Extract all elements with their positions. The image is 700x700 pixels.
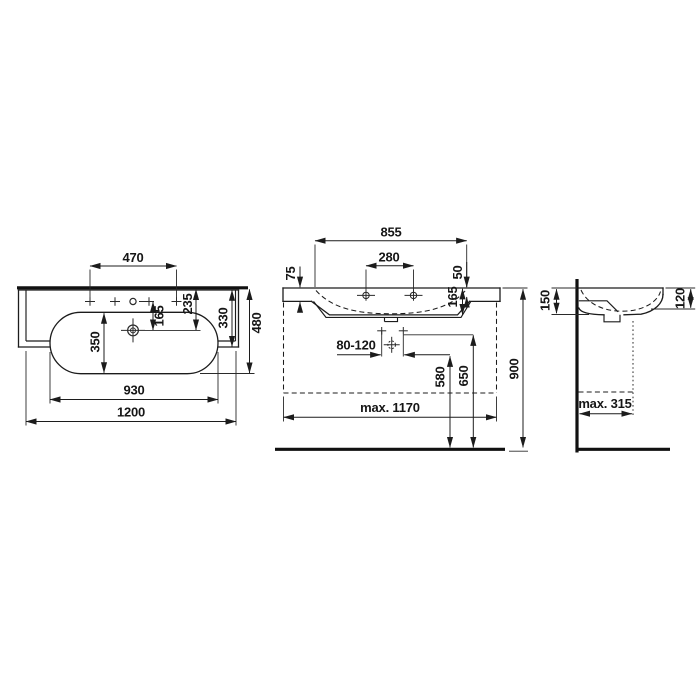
side-dim-wall-height: 150 [537,290,552,311]
plan-dim-back-to-drain: 235 [180,293,195,314]
front-drain-stub [385,317,398,321]
plan-dim-tap-to-drain: 165 [151,305,166,326]
front-bowl-interior-dashed [316,291,466,314]
plan-dim-counter-depth: 330 [215,307,230,328]
plan-bowl-outline [50,312,218,373]
plan-view: 470 165 235 330 480 350 930 1200 [17,250,264,426]
plan-dim-bowl-depth: 350 [87,331,102,352]
front-dim-edge-height: 75 [283,266,298,280]
front-dim-trap-height: 580 [432,366,447,387]
front-dim-outlet-range: 80-120 [336,338,375,353]
side-basin-profile [579,288,664,322]
front-view: 855 280 75 50 165 [275,225,528,452]
front-dim-mounting-height: 900 [506,358,521,379]
washbasin-dimension-drawing: 470 165 235 330 480 350 930 1200 [0,0,700,700]
front-dim-max-clear-width: max. 1170 [360,400,420,415]
front-dim-tap-offset: 50 [450,265,465,279]
front-outlet-position [377,327,473,357]
plan-dim-total-width: 1200 [117,405,145,420]
front-dim-inner-width: 855 [380,225,401,240]
side-view: 150 120 max. 315 [537,279,695,453]
front-tap-hole-marks [357,290,423,301]
front-dim-basin-depth: 165 [445,286,460,307]
front-dim-tap-distance: 280 [378,250,399,265]
plan-dim-tap-spread: 470 [122,250,143,265]
side-dim-apron-height: 120 [672,288,687,309]
front-dim-outlet-height: 650 [456,365,471,386]
technical-drawing-canvas: 470 165 235 330 480 350 930 1200 [0,0,700,700]
plan-tap-hole-circle [130,298,136,304]
side-dim-max-clear-depth: max. 315 [578,396,631,411]
plan-tap-hole-marks [85,297,182,305]
plan-dim-total-depth: 480 [249,312,264,333]
plan-dim-bowl-width: 930 [123,383,144,398]
